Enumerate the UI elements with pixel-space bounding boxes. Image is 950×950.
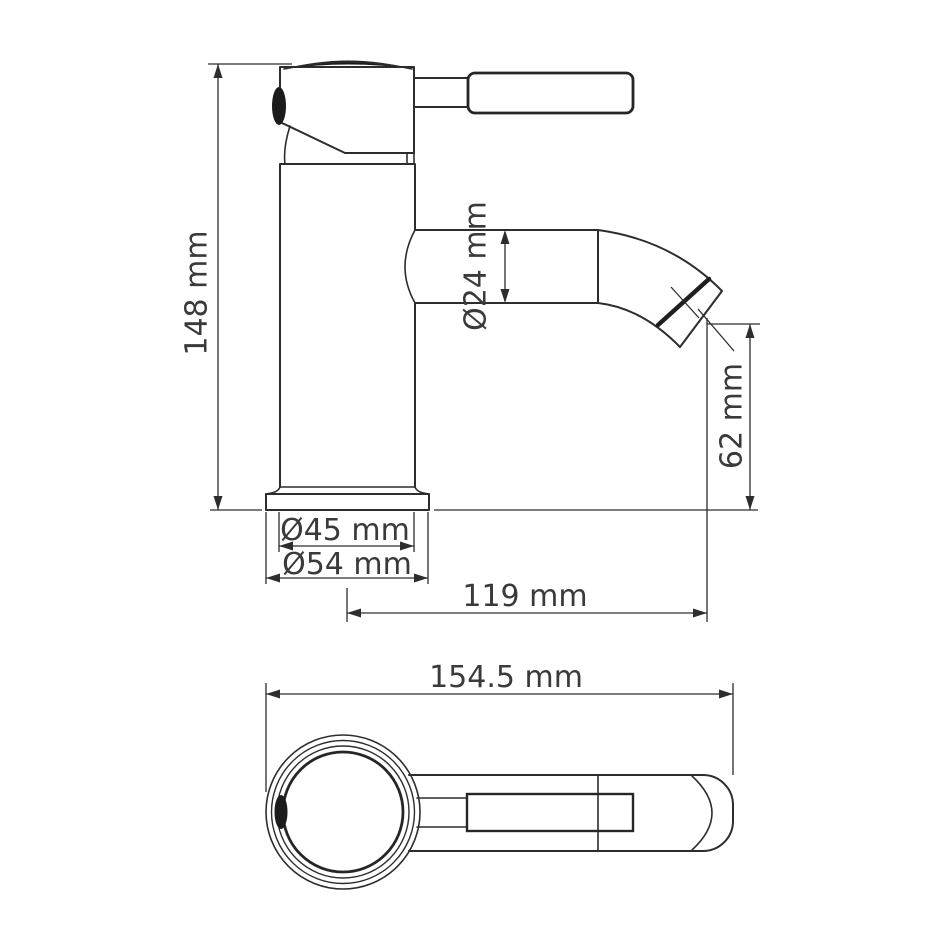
handle-grip (468, 73, 633, 113)
spout-body-fillet (405, 230, 415, 303)
spout-reach-arrow-left (347, 609, 361, 618)
base-flare-right (415, 487, 429, 494)
overall-length-arrow-left (266, 690, 280, 699)
base-diameter-arrow-right (414, 574, 428, 583)
height-dimension-label: 148 mm (180, 230, 215, 355)
base-diameter-arrow-left (266, 574, 280, 583)
outlet-height-arrow-down (746, 496, 755, 510)
base-diameter-label: Ø54 mm (282, 547, 412, 582)
overall-length-arrow-right (719, 690, 733, 699)
handle-top-view-outline (409, 775, 733, 851)
spout-diameter-arrow-up (501, 230, 510, 244)
handle-lever-top-view (467, 794, 633, 831)
dimension-height: 148 mm (180, 64, 293, 510)
dimension-body-diameter: Ø45 mm (279, 512, 414, 552)
side-plug-top-view (275, 795, 288, 829)
spout-reach-arrow-right (693, 609, 707, 618)
body-top-ring-inner (283, 752, 403, 872)
overall-length-label: 154.5 mm (429, 660, 583, 695)
dimension-overall-length: 154.5 mm (266, 660, 733, 792)
height-arrow-down (214, 496, 223, 510)
body-top-ring-3 (277, 746, 409, 878)
dimension-spout-diameter: Ø24 mm (459, 201, 510, 331)
faucet-technical-drawing: 148 mm Ø24 mm 62 mm 119 mm Ø45 mm (0, 0, 950, 950)
handle-stem-top-view (417, 798, 467, 827)
handle-stem (414, 78, 468, 107)
faucet-body-column (280, 164, 415, 487)
base-plate (266, 494, 429, 510)
faucet-dimensional-drawing-page: 148 mm Ø24 mm 62 mm 119 mm Ø45 mm (0, 0, 950, 950)
spout-reach-label: 119 mm (462, 579, 587, 614)
spout-diameter-label: Ø24 mm (459, 201, 494, 331)
body-diameter-label: Ø45 mm (280, 513, 410, 548)
body-top-ring-2 (272, 741, 415, 884)
height-arrow-up (214, 64, 223, 78)
faucet-head-outline (280, 67, 414, 153)
top-view (266, 735, 733, 889)
handle-end-cap-arc (692, 776, 712, 850)
base-flare-left (266, 487, 280, 494)
head-side-plug (272, 87, 286, 125)
outlet-height-arrow-up (746, 324, 755, 338)
neck-arc (285, 126, 290, 164)
body-top-ring-outer (266, 735, 420, 889)
spout-diameter-arrow-down (501, 289, 510, 303)
outlet-height-label: 62 mm (715, 363, 750, 469)
